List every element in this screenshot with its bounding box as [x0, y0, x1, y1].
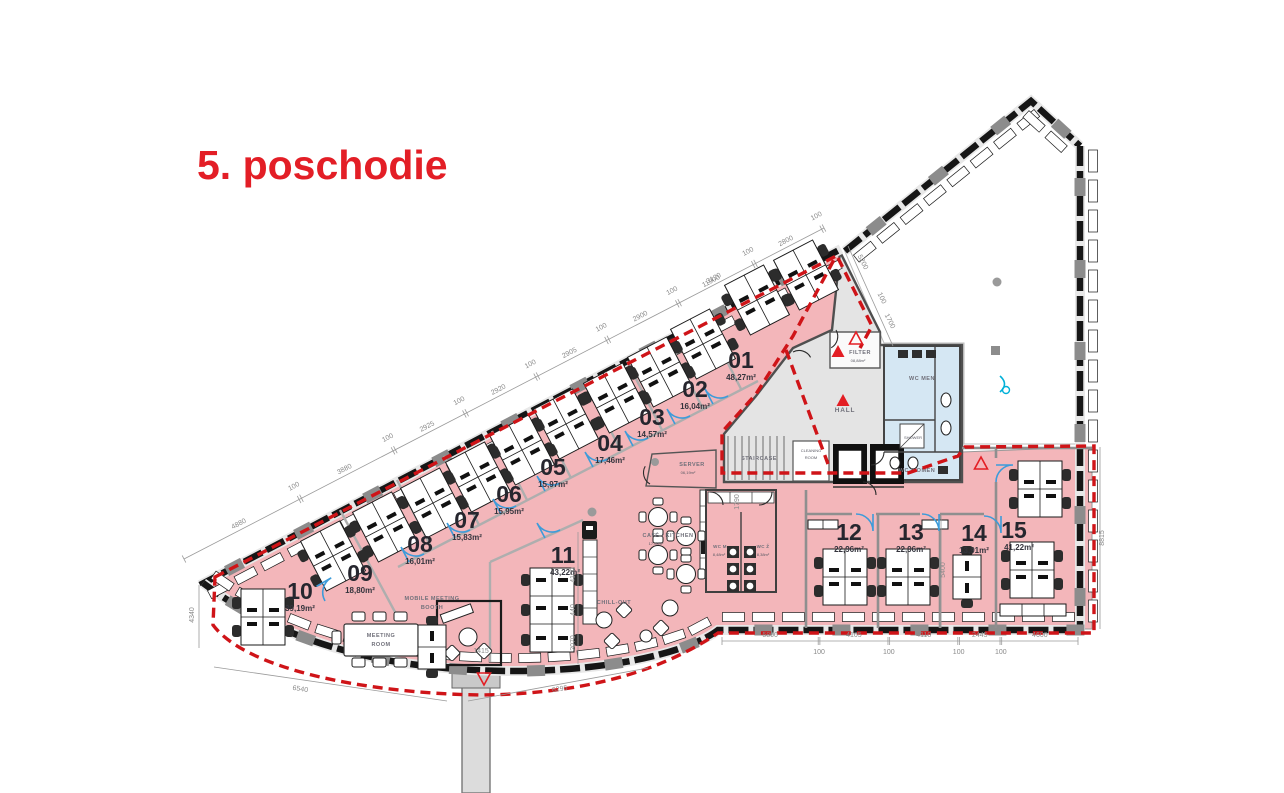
room-area: 17,46m² — [595, 456, 625, 465]
dim-chain-value: 2920 — [490, 383, 507, 396]
dim-chain-value: 100 — [953, 649, 965, 656]
cleaning-room-label-2: ROOM — [805, 455, 817, 460]
room-area: 39,19m² — [285, 604, 315, 613]
room-area: 16,04m² — [680, 402, 710, 411]
dim-chain-value: 100 — [810, 211, 824, 223]
wc-z-label: WC Ž — [757, 542, 770, 549]
floor-plan-svg: STAIRCASE CLEANING ROOM — [0, 0, 1284, 793]
dim-chain-bottom: 58001004105100411010024451004600 — [722, 632, 1078, 656]
dim-1790: 1790 — [734, 494, 741, 510]
room-area: 48,27m² — [726, 373, 756, 382]
dim-chain-value: 100 — [883, 649, 895, 656]
dim-chain-value: 100 — [995, 649, 1007, 656]
dim-6295: 6295 — [552, 685, 569, 694]
room-number: 03 — [639, 404, 665, 430]
room-number: 14 — [961, 520, 987, 546]
desk-cluster — [1009, 461, 1071, 517]
server-area: 06,19m² — [681, 470, 696, 475]
room-area: 15,83m² — [452, 533, 482, 542]
wc-z-area: 8,38m² — [757, 552, 770, 557]
server-label: SERVER — [679, 462, 705, 468]
column-dot — [993, 278, 1002, 287]
wc-m-label: WC M — [713, 544, 727, 549]
wc-mz-block: WC M 8,48m² WC Ž 8,38m² — [706, 490, 776, 592]
desk-cluster — [877, 549, 939, 605]
dim-chain-value: 2925 — [419, 420, 436, 433]
meeting-room-label-1: MEETING — [367, 633, 396, 639]
dim-chain-value: 4880 — [231, 518, 248, 531]
room-number: 15 — [1001, 517, 1027, 543]
room-number: 09 — [347, 560, 373, 586]
room-number: 02 — [682, 376, 708, 402]
room-number: 10 — [287, 578, 313, 604]
room-area: 15,97m² — [538, 480, 568, 489]
dim-4100: 4100 — [570, 567, 577, 583]
dim-1415: 1415 — [473, 648, 489, 655]
dim-440: 440 — [570, 604, 577, 616]
dim-chain-value: 100 — [595, 322, 609, 334]
cleaning-room: CLEANING ROOM — [793, 441, 829, 481]
room-area: 14,57m² — [637, 430, 667, 439]
dim-5400: 5400 — [940, 562, 947, 578]
dim-chain-value: 4110 — [916, 632, 931, 639]
staircase-label: STAIRCASE — [741, 456, 777, 462]
dim-6540: 6540 — [292, 685, 309, 694]
dim-8815: 8815 — [1099, 530, 1106, 546]
room-number: 01 — [728, 347, 754, 373]
dim-chain-value: 100 — [381, 432, 395, 444]
dim-chain-value: 100 — [453, 396, 467, 408]
chill-out-label: CHILL-OUT — [597, 600, 631, 606]
dim-chain-value: 100 — [287, 481, 301, 493]
room-area: 41,22m² — [1004, 543, 1034, 552]
dim-4340: 4340 — [189, 607, 196, 623]
dim-chain-value: 5800 — [762, 632, 778, 639]
area-fills — [205, 101, 1092, 793]
dim-chain-value: 2905 — [561, 347, 578, 360]
filter-area: 08,88m² — [851, 358, 866, 363]
dim-chain-value: 100 — [813, 649, 825, 656]
room-number: 07 — [454, 507, 480, 533]
room-area: 13,91m² — [959, 546, 989, 555]
room-area: 22,96m² — [834, 545, 864, 554]
desk-cluster — [232, 589, 294, 645]
dim-chain-value: 2900 — [632, 310, 649, 323]
room-number: 13 — [898, 519, 924, 545]
room-number: 06 — [496, 481, 522, 507]
dim-chain-value: 4600 — [1032, 632, 1048, 639]
dim-chain-value: 100 — [741, 246, 755, 258]
cafe-label: CAFÉ / KITCHEN — [643, 531, 694, 539]
booth-label-1: MOBILE MEETING — [405, 596, 460, 602]
room-number: 12 — [836, 519, 862, 545]
room-area: 18,80m² — [345, 586, 375, 595]
cafe-area: 17,08m² — [649, 541, 664, 546]
booth-label-2: BOOTH — [421, 605, 443, 611]
room-area: 16,01m² — [405, 557, 435, 566]
dim-chain-value: 4105 — [846, 632, 862, 639]
dim-2070: 2070 — [570, 635, 577, 651]
room-area: 15,95m² — [494, 507, 524, 516]
hall-label: HALL — [835, 407, 856, 414]
room-number: 04 — [597, 430, 623, 456]
desk-cluster — [953, 546, 981, 608]
wc-m-area: 8,48m² — [713, 552, 726, 557]
desk-cluster — [814, 549, 876, 605]
desk-cluster — [418, 616, 446, 678]
room11-cabinets — [582, 508, 597, 625]
room-number: 11 — [551, 542, 576, 568]
room-number: 05 — [540, 454, 566, 480]
dim-chain-value: 100 — [524, 359, 538, 371]
column-square — [991, 346, 1000, 355]
floor-plan-page: 5. poschodie — [0, 0, 1284, 793]
cleaning-room-label-1: CLEANING — [801, 448, 821, 453]
dim-chain-value: 3880 — [336, 463, 353, 476]
dim-chain-value: 2445 — [972, 632, 988, 639]
filter-label: FILTER — [849, 350, 871, 356]
wc-men-label: WC MEN — [909, 376, 935, 382]
shower-label: SHOWER — [904, 435, 922, 440]
meeting-room-label-2: ROOM — [371, 642, 390, 648]
room-area: 22,96m² — [896, 545, 926, 554]
room-number: 08 — [407, 531, 433, 557]
dim-chain-value: 100 — [665, 285, 679, 297]
dim-chain-value: 2800 — [778, 235, 795, 248]
